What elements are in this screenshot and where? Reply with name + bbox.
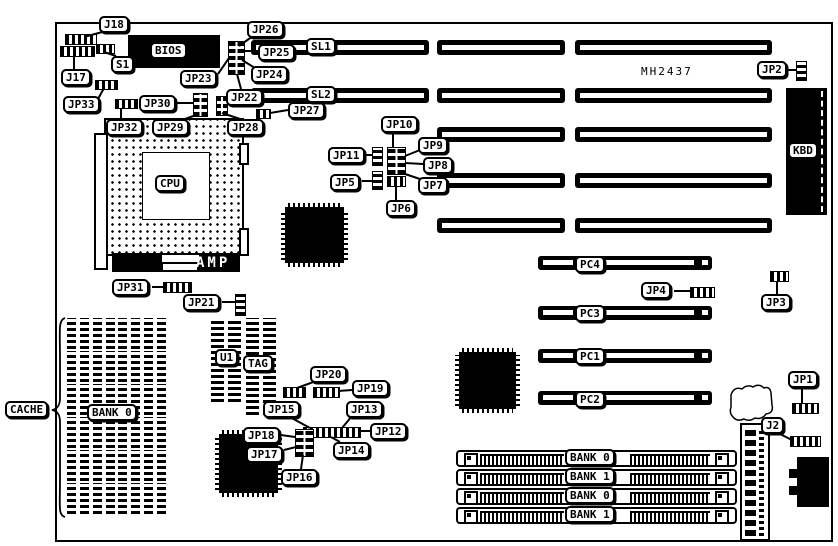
label-jp4: JP4	[641, 282, 671, 299]
simm-latch-left	[464, 472, 478, 486]
power-connector-pins	[745, 428, 756, 536]
cache-chip-r5c3	[118, 450, 140, 481]
qfp-pins-bottom	[222, 493, 275, 497]
label-sl2: SL2	[306, 86, 336, 103]
simm-latch-left	[464, 510, 478, 524]
j18-jumper	[65, 34, 97, 45]
qfp-pins-bottom	[288, 263, 341, 267]
isa-slot-key	[442, 132, 560, 137]
power-connector-pins	[759, 428, 764, 536]
simm-latch-right	[715, 510, 729, 524]
external-connector-tab	[789, 486, 798, 495]
cache-chip-r2c1	[67, 351, 89, 382]
cache-chip-r6c3	[118, 483, 140, 514]
label-sl1: SL1	[306, 38, 336, 55]
cache-chip-r5c2	[93, 450, 115, 481]
cache-chip-r4c3	[118, 417, 140, 448]
simm-teeth	[480, 511, 564, 524]
label-jp18: JP18	[243, 427, 280, 444]
amp-lever	[162, 255, 199, 262]
pci-slot-4	[538, 391, 712, 405]
label-pc1: PC1	[575, 348, 605, 365]
label-jp33: JP33	[63, 96, 100, 113]
label-j17: J17	[61, 69, 91, 86]
jp21-jumper	[235, 294, 246, 316]
cache-chip-r3c4	[144, 384, 166, 415]
isa-slot-row2-C	[575, 88, 772, 103]
simm-latch-left	[464, 453, 478, 467]
isa-slot-row2-B	[437, 88, 565, 103]
jp32-jumper	[115, 99, 138, 109]
pci-slot-2	[538, 306, 712, 320]
isa-slot-row5-C	[575, 218, 772, 233]
label-jp30: JP30	[139, 95, 176, 112]
jp17-jumper-block	[295, 429, 314, 457]
s1-switch	[96, 44, 115, 54]
label-jp7: JP7	[418, 177, 448, 194]
label-jp26: JP26	[247, 21, 284, 38]
cache-chip-r4c4	[144, 417, 166, 448]
label-pc2: PC2	[575, 391, 605, 408]
j17-jumper	[60, 46, 95, 57]
label-jp22: JP22	[226, 89, 263, 106]
jp5-jumper	[372, 171, 383, 190]
cpu-socket-tab	[239, 228, 249, 256]
cache-chip-r2c4	[144, 351, 166, 382]
jp7-jumper	[387, 176, 406, 187]
amp-socket-text: AMP	[196, 255, 230, 271]
jp2-jumper	[796, 61, 807, 81]
label-jp24: JP24	[251, 66, 288, 83]
qfp-pins-bottom	[462, 409, 513, 413]
label-pc3: PC3	[575, 305, 605, 322]
board-model-text: MH2437	[641, 65, 693, 78]
isa-slot-key	[442, 93, 560, 98]
cache-chip-r6c1	[67, 483, 89, 514]
label-jp13: JP13	[346, 401, 383, 418]
pci-slot-notch	[702, 395, 708, 400]
qfp-pins-top	[462, 348, 513, 352]
label-jp21: JP21	[183, 294, 220, 311]
qfp-pins-left	[281, 210, 285, 260]
qfp-chip-2	[455, 348, 520, 413]
qfp-body	[459, 352, 516, 409]
isa-slot-key	[442, 45, 560, 50]
label-bank1a: BANK 1	[565, 468, 615, 485]
external-power-connector	[797, 457, 829, 507]
jp30-jumper	[193, 93, 208, 117]
cache-chip-r1c1	[67, 318, 89, 349]
label-jp8: JP8	[423, 157, 453, 174]
jp33-jumper	[95, 80, 118, 90]
label-jp29: JP29	[152, 119, 189, 136]
label-jp11: JP11	[328, 147, 365, 164]
label-u1: U1	[215, 349, 238, 366]
pci-slot-key	[543, 310, 573, 315]
label-jp14: JP14	[333, 442, 370, 459]
cache-chip-r1c3	[118, 318, 140, 349]
cache-chip-r5c4	[144, 450, 166, 481]
label-j18: J18	[99, 16, 129, 33]
qfp-pins-right	[344, 210, 348, 260]
simm-teeth	[480, 473, 564, 486]
simm-latch-left	[464, 491, 478, 505]
isa-slot-row4-C	[575, 173, 772, 188]
label-jp19: JP19	[352, 380, 389, 397]
simm-latch-right	[715, 491, 729, 505]
qfp-pins-right	[516, 355, 520, 406]
jp27-jumper	[256, 109, 271, 119]
label-bank0a: BANK 0	[565, 449, 615, 466]
simm-teeth	[480, 454, 564, 467]
j2-jumper	[790, 436, 821, 447]
label-cache: CACHE	[5, 401, 48, 418]
isa-slot-key	[580, 223, 767, 228]
cache-chip-r4c2	[93, 417, 115, 448]
label-jp16: JP16	[281, 469, 318, 486]
jp19-jumper	[313, 387, 340, 398]
jp31-jumper	[163, 282, 192, 293]
label-jp2: JP2	[757, 61, 787, 78]
cache-chip-r4c1	[67, 417, 89, 448]
simm-latch-right	[715, 453, 729, 467]
kbd-connector-edge	[821, 91, 823, 212]
pci-slot-key	[543, 395, 573, 400]
label-j2: J2	[761, 417, 784, 434]
cache-chip-r2c3	[118, 351, 140, 382]
qfp-pins-left	[455, 355, 459, 406]
jp1-jumper	[792, 403, 819, 414]
cache-chip-r1c2	[93, 318, 115, 349]
cpu-socket-lever-bar	[94, 133, 108, 270]
isa-slot-row4-B	[437, 173, 565, 188]
label-jp20: JP20	[310, 366, 347, 383]
jp3-jumper	[770, 271, 789, 282]
pci-slot-notch	[702, 353, 708, 358]
label-jp12: JP12	[370, 423, 407, 440]
label-jp27: JP27	[288, 102, 325, 119]
pci-slot-key	[543, 353, 573, 358]
jp8-jumper-block	[387, 147, 406, 175]
label-bank0c: BANK 0	[87, 404, 137, 421]
isa-slot-row1-C	[575, 40, 772, 55]
isa-slot-row3-B	[437, 127, 565, 142]
qfp-chip-1	[281, 203, 348, 267]
cache-chip-r3c1	[67, 384, 89, 415]
simm-teeth	[630, 454, 710, 467]
label-jp28: JP28	[227, 119, 264, 136]
isa-slot-key	[580, 45, 767, 50]
jp20-jumper	[283, 387, 306, 398]
cache-chip-r1c4	[144, 318, 166, 349]
isa-slot-key	[256, 93, 424, 98]
amp-lever	[163, 264, 197, 270]
label-jp15: JP15	[263, 401, 300, 418]
jp23-jumper-block	[228, 41, 245, 75]
isa-slot-key	[442, 178, 560, 183]
label-bank0b: BANK 0	[565, 487, 615, 504]
cache-chip-r6c2	[93, 483, 115, 514]
pci-slot-3	[538, 349, 712, 363]
isa-slot-row1-B	[437, 40, 565, 55]
qfp-pins-left	[215, 437, 219, 490]
isa-slot-row2-A	[251, 88, 429, 103]
isa-slot-row5-B	[437, 218, 565, 233]
isa-slot-key	[580, 93, 767, 98]
isa-slot-key	[442, 223, 560, 228]
label-jp9: JP9	[418, 137, 448, 154]
motherboard-diagram: MH2437 AMP J18J17S1JP33JP30JP32JP29JP28J…	[0, 0, 838, 546]
label-jp6: JP6	[386, 200, 416, 217]
label-jp17: JP17	[246, 446, 283, 463]
label-tag: TAG	[243, 355, 273, 372]
pci-slot-notch	[702, 310, 708, 315]
jp4-jumper	[690, 287, 715, 298]
simm-teeth	[630, 492, 710, 505]
cpu-socket-tab	[239, 143, 249, 165]
label-jp23: JP23	[180, 70, 217, 87]
pci-slot-notch	[702, 260, 708, 265]
cache-chip-r6c4	[144, 483, 166, 514]
power-connector	[740, 423, 770, 541]
label-jp3: JP3	[761, 294, 791, 311]
jp11-jumper	[372, 147, 383, 166]
pci-slot-key	[543, 260, 573, 265]
isa-slot-row3-C	[575, 127, 772, 142]
simm-teeth	[630, 473, 710, 486]
label-jp5: JP5	[330, 174, 360, 191]
isa-slot-key	[580, 178, 767, 183]
label-jp10: JP10	[381, 116, 418, 133]
label-jp32: JP32	[106, 119, 143, 136]
isa-slot-key	[580, 132, 767, 137]
qfp-pins-top	[288, 203, 341, 207]
label-bios: BIOS	[150, 42, 187, 59]
pci-slot-1	[538, 256, 712, 270]
label-jp31: JP31	[112, 279, 149, 296]
label-kbd: KBD	[788, 142, 818, 159]
label-jp25: JP25	[258, 44, 295, 61]
simm-teeth	[480, 492, 564, 505]
label-jp1: JP1	[788, 371, 818, 388]
cache-chip-r5c1	[67, 450, 89, 481]
label-s1: S1	[111, 56, 134, 73]
label-pc4: PC4	[575, 256, 605, 273]
qfp-body	[285, 207, 344, 263]
external-connector-tab	[789, 469, 798, 478]
simm-teeth	[630, 511, 710, 524]
label-bank1b: BANK 1	[565, 506, 615, 523]
cache-chip-r2c2	[93, 351, 115, 382]
label-cpu: CPU	[155, 175, 185, 192]
simm-latch-right	[715, 472, 729, 486]
